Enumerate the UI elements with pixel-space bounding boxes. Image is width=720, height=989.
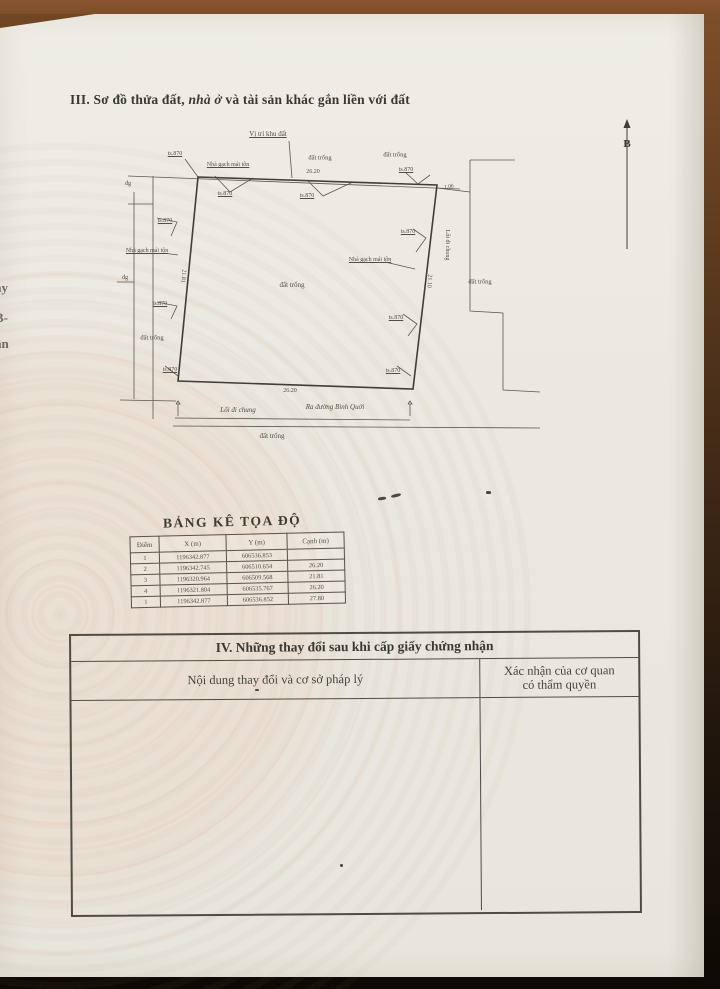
map-label: đất trống: [308, 155, 331, 162]
section3-title-pre: III. Sơ đồ thửa đất,: [70, 92, 188, 107]
section3-title-italic: nhà ở: [188, 92, 221, 107]
cadastral-map-lines: [85, 114, 680, 459]
cadastral-map: Vị trí khu đấtts.870Nhà gạch mái tônđất …: [85, 114, 680, 459]
map-label: Lối đi chung: [220, 406, 255, 414]
col-point: Điểm: [130, 536, 159, 553]
section4-col1-header: Nội dung thay đổi và cơ sở pháp lý: [71, 659, 480, 700]
margin-fragment-1: ày: [0, 280, 8, 296]
ink-speck: [340, 864, 343, 867]
map-label: Ra đường Bình Quới: [306, 403, 365, 411]
certificate-page: III. Sơ đồ thửa đất, nhà ở và tài sản kh…: [0, 14, 704, 977]
map-label: Lối đi chung: [444, 230, 450, 261]
north-label: B: [623, 138, 630, 150]
map-label: ts.870: [158, 218, 173, 224]
coordinate-table-block: BẢNG KÊ TỌA ĐỘ Điểm X (m) Y (m) Cạnh (m)…: [117, 511, 349, 608]
map-label: ts.870: [163, 367, 178, 373]
map-label: đg: [122, 275, 128, 281]
page-corner-shadow: [0, 14, 95, 28]
map-label: đất trống: [140, 335, 163, 342]
map-label: Nhà gạch mái tôn: [349, 257, 392, 263]
map-label: đất trống: [383, 152, 406, 159]
ink-speck: [378, 496, 386, 500]
map-label: 26.20: [306, 169, 320, 175]
coordinate-table-title: BẢNG KÊ TỌA ĐỘ: [117, 511, 347, 532]
map-label: ts.870: [386, 368, 401, 374]
ink-speck: [255, 689, 259, 691]
section3-title: III. Sơ đồ thửa đất, nhà ở và tài sản kh…: [70, 92, 670, 108]
map-label: đất trống: [279, 281, 304, 289]
margin-fragment-3: ận: [0, 336, 9, 352]
map-label: Nhà gạch mái tôn: [126, 248, 169, 254]
ink-speck: [486, 491, 491, 494]
map-label: 26.20: [283, 388, 297, 394]
map-label: Nhà gạch mái tôn: [207, 162, 250, 168]
section4-table: IV. Những thay đổi sau khi cấp giấy chứn…: [69, 630, 642, 917]
section3-title-post: và tài sản khác gắn liền với đất: [222, 92, 410, 107]
map-label: ts.870: [168, 151, 183, 157]
map-label: 21.81: [179, 269, 186, 283]
map-label: ts.870: [300, 193, 315, 199]
map-label: ts.870: [153, 301, 168, 307]
ink-speck: [391, 493, 401, 498]
col-edge: Cạnh (m): [287, 532, 344, 549]
map-label: Vị trí khu đất: [249, 130, 287, 138]
map-label: đất trống: [468, 279, 491, 286]
section4-col2-header: Xác nhận của cơ quan có thẩm quyền: [480, 658, 638, 697]
margin-fragment-2: B-: [0, 310, 8, 326]
section4-header-row: Nội dung thay đổi và cơ sở pháp lý Xác n…: [71, 658, 638, 701]
section4-empty-body: [71, 697, 639, 913]
map-label: ts.870: [399, 167, 414, 173]
map-label: ts.870: [401, 229, 416, 235]
section4-col2-line1: Xác nhận của cơ quan: [504, 663, 615, 678]
section4-body-right: [480, 697, 639, 910]
map-label: 21.10: [426, 274, 433, 288]
photo-of-certificate-page: III. Sơ đồ thửa đất, nhà ở và tài sản kh…: [0, 0, 720, 989]
map-label: ts.870: [218, 191, 233, 197]
map-label: đất trống: [259, 432, 284, 440]
col-y: Y (m): [226, 533, 287, 550]
section4-col2-line2: có thẩm quyền: [523, 677, 597, 692]
map-label: ts.870: [389, 315, 404, 321]
coordinate-table: Điểm X (m) Y (m) Cạnh (m) 11196342.87760…: [129, 531, 346, 608]
section4-body-left: [71, 698, 481, 913]
col-x: X (m): [159, 535, 226, 553]
map-label: đg: [125, 181, 131, 187]
section4-title: IV. Những thay đổi sau khi cấp giấy chứn…: [71, 632, 638, 662]
